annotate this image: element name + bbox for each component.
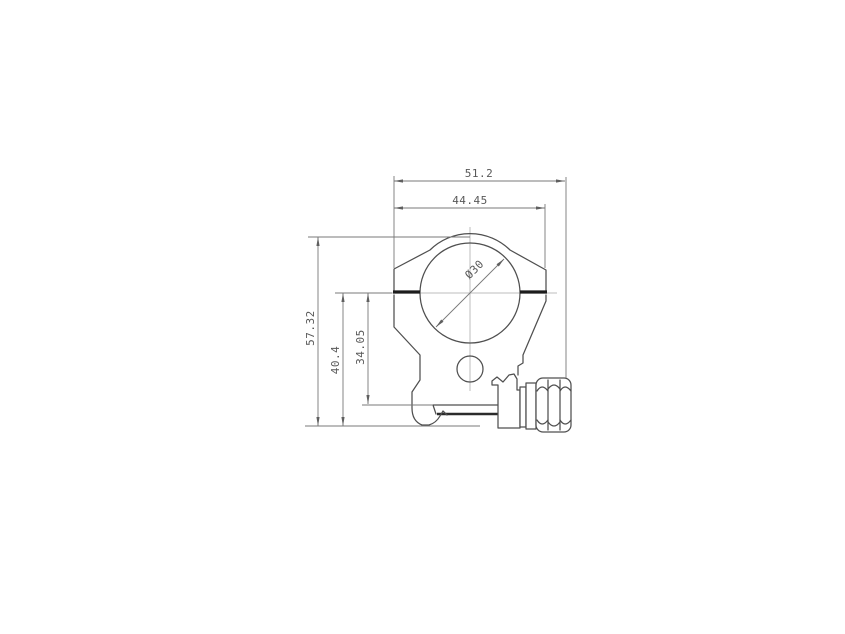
washer-outer-ring	[526, 383, 536, 429]
technical-drawing-svg: 51.2 44.45 57.32 40.4	[0, 0, 845, 634]
arrowhead-down-icon	[366, 395, 369, 404]
arrowhead-down-icon	[341, 417, 344, 426]
drawing-canvas: 51.2 44.45 57.32 40.4	[0, 0, 845, 634]
arrowhead-right-icon	[536, 206, 545, 209]
dim-overall-width-label: 51.2	[465, 167, 494, 180]
washer-inner-ring	[520, 387, 526, 427]
dim-ring-width-label: 44.45	[452, 194, 488, 207]
arrowhead-right-icon	[556, 179, 565, 182]
arrowhead-up-icon	[366, 293, 369, 302]
dim-rail-to-split: 34.05	[354, 293, 370, 404]
clamp-plate	[492, 374, 520, 428]
hex-nut	[536, 378, 571, 432]
arrowhead-up-icon	[316, 237, 319, 246]
arrowhead-down-icon	[316, 417, 319, 426]
dim-base-to-split-label: 40.4	[329, 346, 342, 375]
dim-ring-width: 44.45	[394, 194, 545, 210]
arrowhead-left-icon	[394, 206, 403, 209]
dim-rail-to-split-label: 34.05	[354, 329, 367, 365]
dim-overall-width: 51.2	[394, 167, 565, 183]
arrowhead-up-icon	[341, 293, 344, 302]
dim-overall-height-label: 57.32	[304, 310, 317, 346]
dim-base-to-split: 40.4	[329, 293, 345, 426]
arrowhead-lower-left-icon	[436, 320, 444, 328]
dim-bore-diameter-label: Ø30	[462, 257, 486, 281]
centerlines	[378, 227, 557, 391]
body-lower-right-outline	[518, 295, 546, 375]
clamp-washer	[520, 383, 536, 429]
arrowhead-left-icon	[394, 179, 403, 182]
dim-overall-height: 57.32	[304, 237, 320, 426]
